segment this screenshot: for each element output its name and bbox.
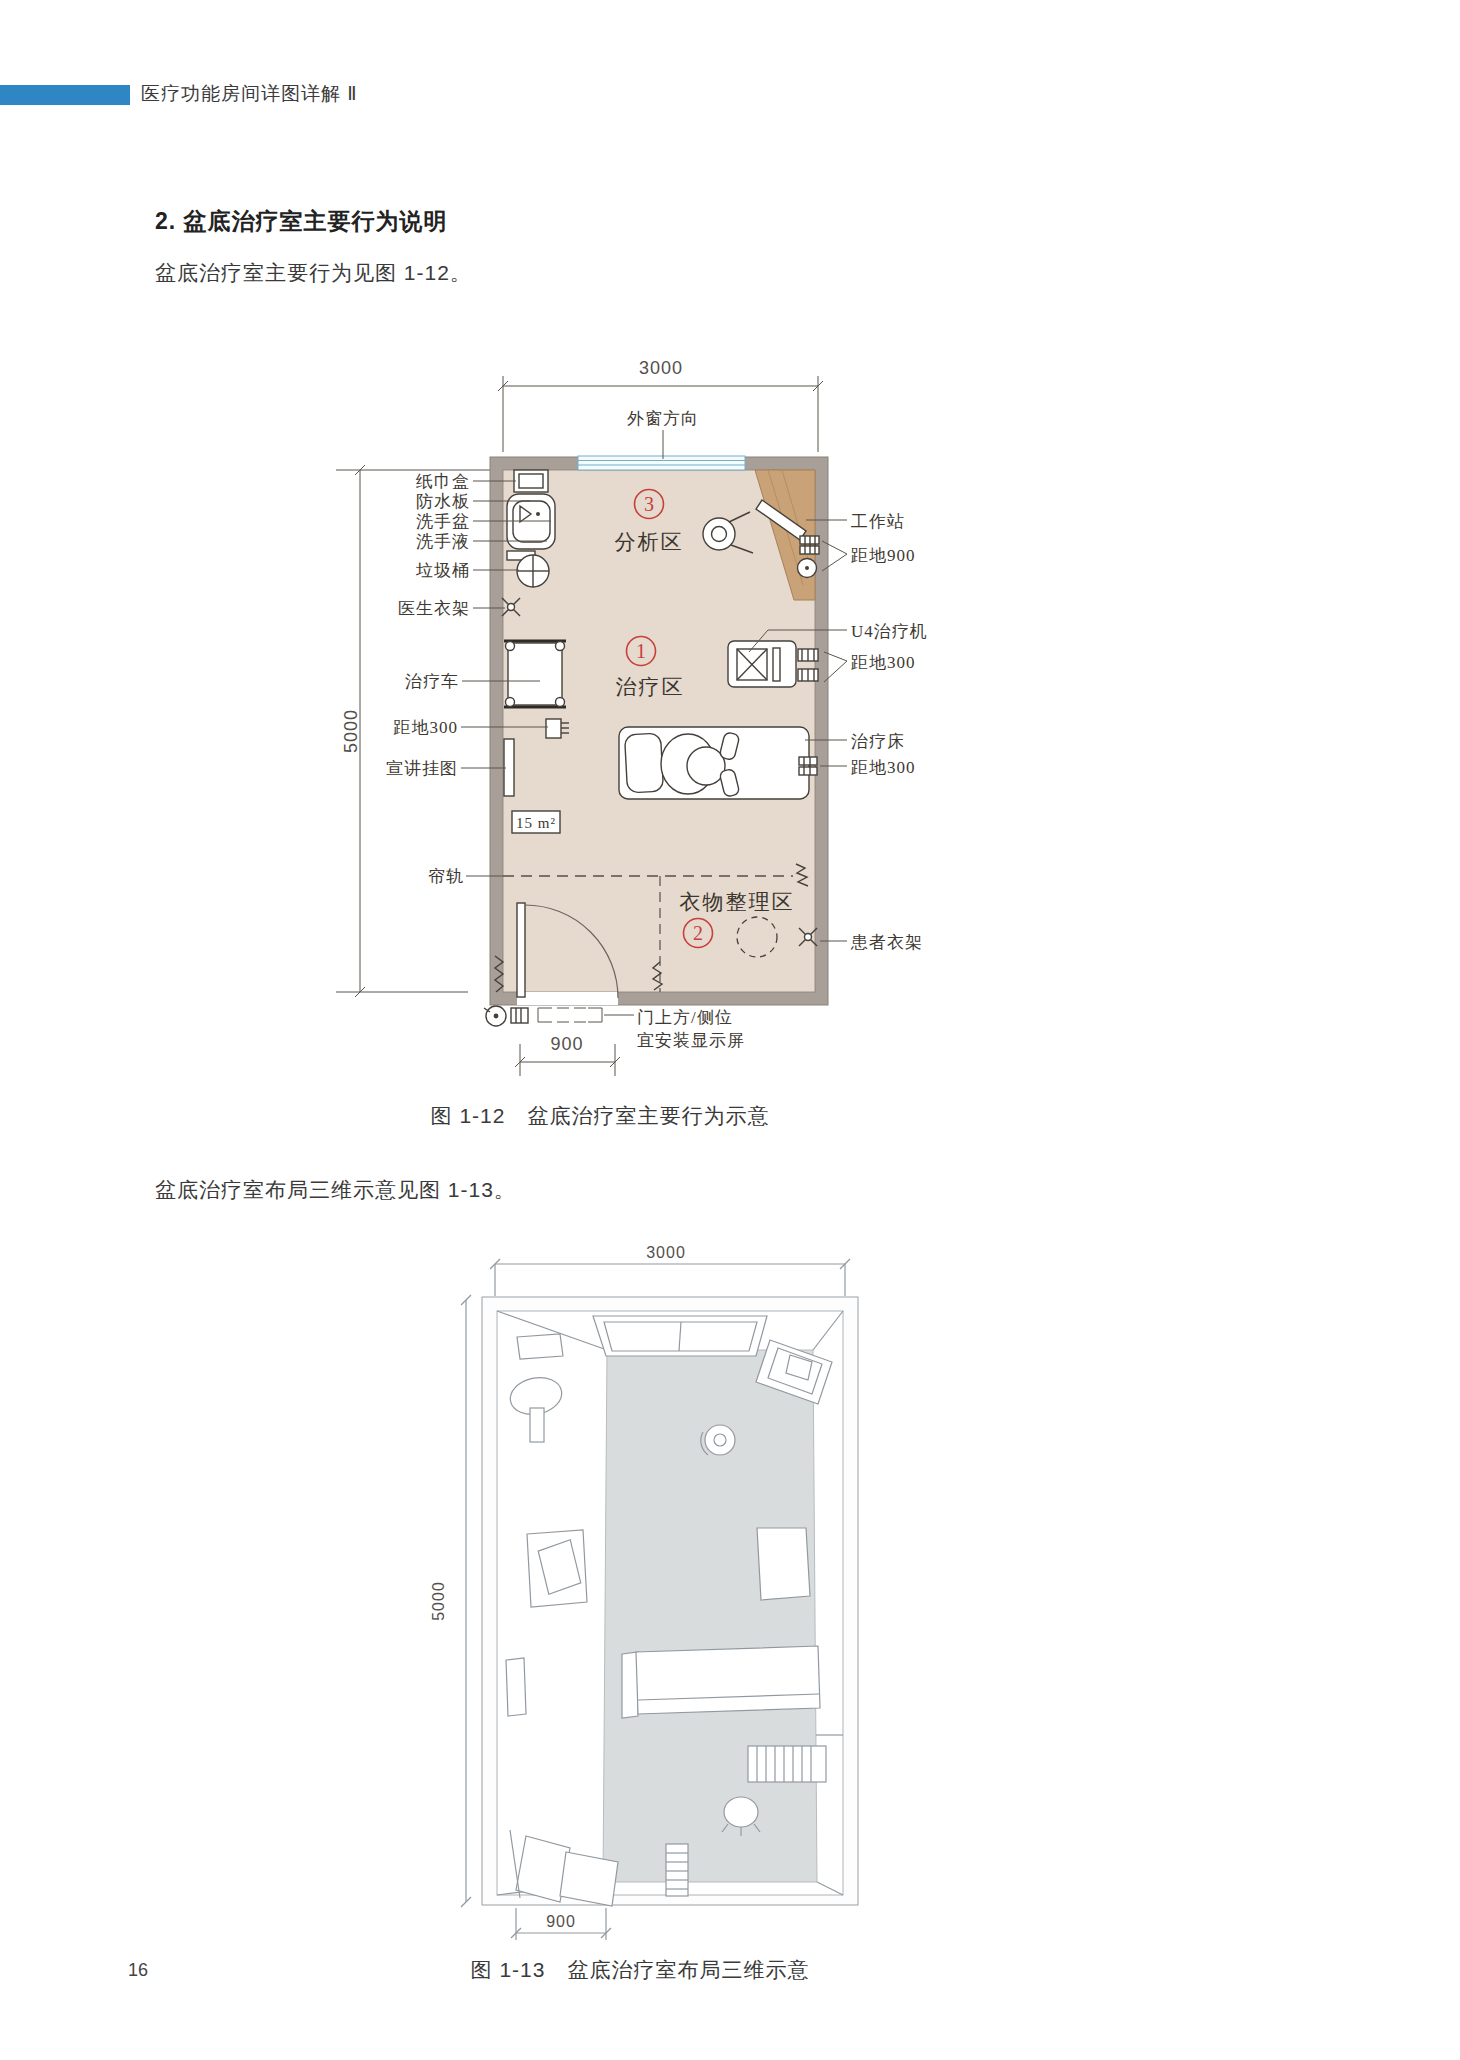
fig13-dim-top bbox=[490, 1259, 850, 1296]
label-washbasin: 洗手盆 bbox=[416, 512, 470, 531]
label-doctor-coat-rack: 医生衣架 bbox=[398, 599, 470, 618]
zone-2-number: 2 bbox=[693, 922, 703, 944]
trash-bin-icon bbox=[517, 555, 549, 587]
label-u4-machine: U4治疗机 bbox=[851, 622, 928, 641]
pillow-icon bbox=[625, 733, 664, 793]
paragraph-fig12-ref: 盆底治疗室主要行为见图 1-12。 bbox=[155, 259, 472, 287]
label-height-300-left: 距地300 bbox=[394, 718, 459, 737]
label-trash-bin: 垃圾桶 bbox=[415, 561, 470, 580]
window-3d-icon bbox=[593, 1316, 767, 1356]
paragraph-fig13-ref: 盆底治疗室布局三维示意见图 1-13。 bbox=[155, 1176, 516, 1204]
fig12-dim-top-value: 3000 bbox=[639, 358, 683, 378]
label-curtain-track: 帘轨 bbox=[428, 867, 464, 886]
label-workstation: 工作站 bbox=[851, 512, 905, 531]
cart-3d-icon bbox=[527, 1530, 587, 1607]
fig-1-13-3d-view: 3000 5000 bbox=[400, 1230, 900, 1950]
zone-1-label: 治疗区 bbox=[616, 675, 685, 699]
poster-3d-icon bbox=[506, 1658, 526, 1716]
section-heading: 2. 盆底治疗室主要行为说明 bbox=[155, 206, 448, 237]
fig-1-12-caption: 图 1-12 盆底治疗室主要行为示意 bbox=[330, 1102, 870, 1130]
door-note-line1: 门上方/侧位 bbox=[637, 1008, 733, 1027]
u4-machine-3d-icon bbox=[757, 1528, 810, 1600]
fig13-dim-door-value: 900 bbox=[546, 1913, 576, 1930]
window-direction-label: 外窗方向 bbox=[627, 409, 699, 428]
fig-1-13-caption: 图 1-13 盆底治疗室布局三维示意 bbox=[390, 1956, 890, 1984]
window-icon bbox=[578, 456, 745, 470]
page-number: 16 bbox=[128, 1960, 148, 1981]
label-waterproof-board: 防水板 bbox=[416, 492, 470, 511]
zone-2-label: 衣物整理区 bbox=[680, 890, 795, 914]
label-height-900: 距地900 bbox=[851, 546, 916, 565]
label-patient-coat-rack: 患者衣架 bbox=[850, 933, 923, 952]
zone-3-label: 分析区 bbox=[615, 530, 684, 554]
label-height-300-bed: 距地300 bbox=[851, 758, 916, 777]
label-lecture-poster: 宣讲挂图 bbox=[386, 759, 458, 778]
striped-mat-icon bbox=[748, 1746, 826, 1782]
treatment-cart-icon bbox=[504, 641, 566, 707]
zone-3-number: 3 bbox=[644, 493, 654, 515]
document-page: 医疗功能房间详图详解 Ⅱ 2. 盆底治疗室主要行为说明 盆底治疗室主要行为见图 … bbox=[0, 0, 1460, 2060]
small-mat-icon bbox=[666, 1844, 688, 1896]
treatment-bed-icon bbox=[619, 727, 817, 799]
label-paper-towel-box: 纸巾盒 bbox=[416, 472, 470, 491]
label-height-300-u4: 距地300 bbox=[851, 653, 916, 672]
left-labels: 纸巾盒 防水板 洗手盆 洗手液 垃圾桶 医生衣架 治疗车 距地300 宣讲挂图 … bbox=[386, 472, 470, 886]
fig13-dim-left bbox=[461, 1295, 471, 1907]
fig12-dim-door-value: 900 bbox=[550, 1034, 583, 1054]
bed-3d-icon bbox=[622, 1646, 820, 1718]
header-accent-bar bbox=[0, 85, 130, 105]
fig13-dim-top-value: 3000 bbox=[646, 1244, 686, 1261]
label-hand-soap: 洗手液 bbox=[416, 532, 470, 551]
area-box: 15 m² bbox=[512, 811, 560, 833]
area-label: 15 m² bbox=[516, 815, 556, 831]
paper-box-3d-icon bbox=[517, 1334, 563, 1359]
door-note-line2: 宜安装显示屏 bbox=[637, 1031, 745, 1050]
fig-1-12-floor-plan: 3000 5000 外窗方向 bbox=[300, 340, 1080, 1090]
door-closer-icon bbox=[484, 1006, 506, 1026]
display-screen-symbol bbox=[538, 1008, 634, 1022]
zone-1-number: 1 bbox=[636, 640, 646, 662]
door-stop-icon bbox=[511, 1008, 528, 1023]
label-treatment-cart: 治疗车 bbox=[405, 672, 459, 691]
page-header-title: 医疗功能房间详图详解 Ⅱ bbox=[141, 81, 358, 107]
right-labels: 工作站 距地900 U4治疗机 距地300 治疗床 距地300 患者衣架 bbox=[850, 512, 928, 952]
label-treatment-bed: 治疗床 bbox=[851, 732, 905, 751]
fig13-dim-left-value: 5000 bbox=[430, 1581, 447, 1621]
fig12-dim-left-value: 5000 bbox=[341, 709, 361, 753]
paper-towel-box-icon bbox=[514, 470, 548, 492]
